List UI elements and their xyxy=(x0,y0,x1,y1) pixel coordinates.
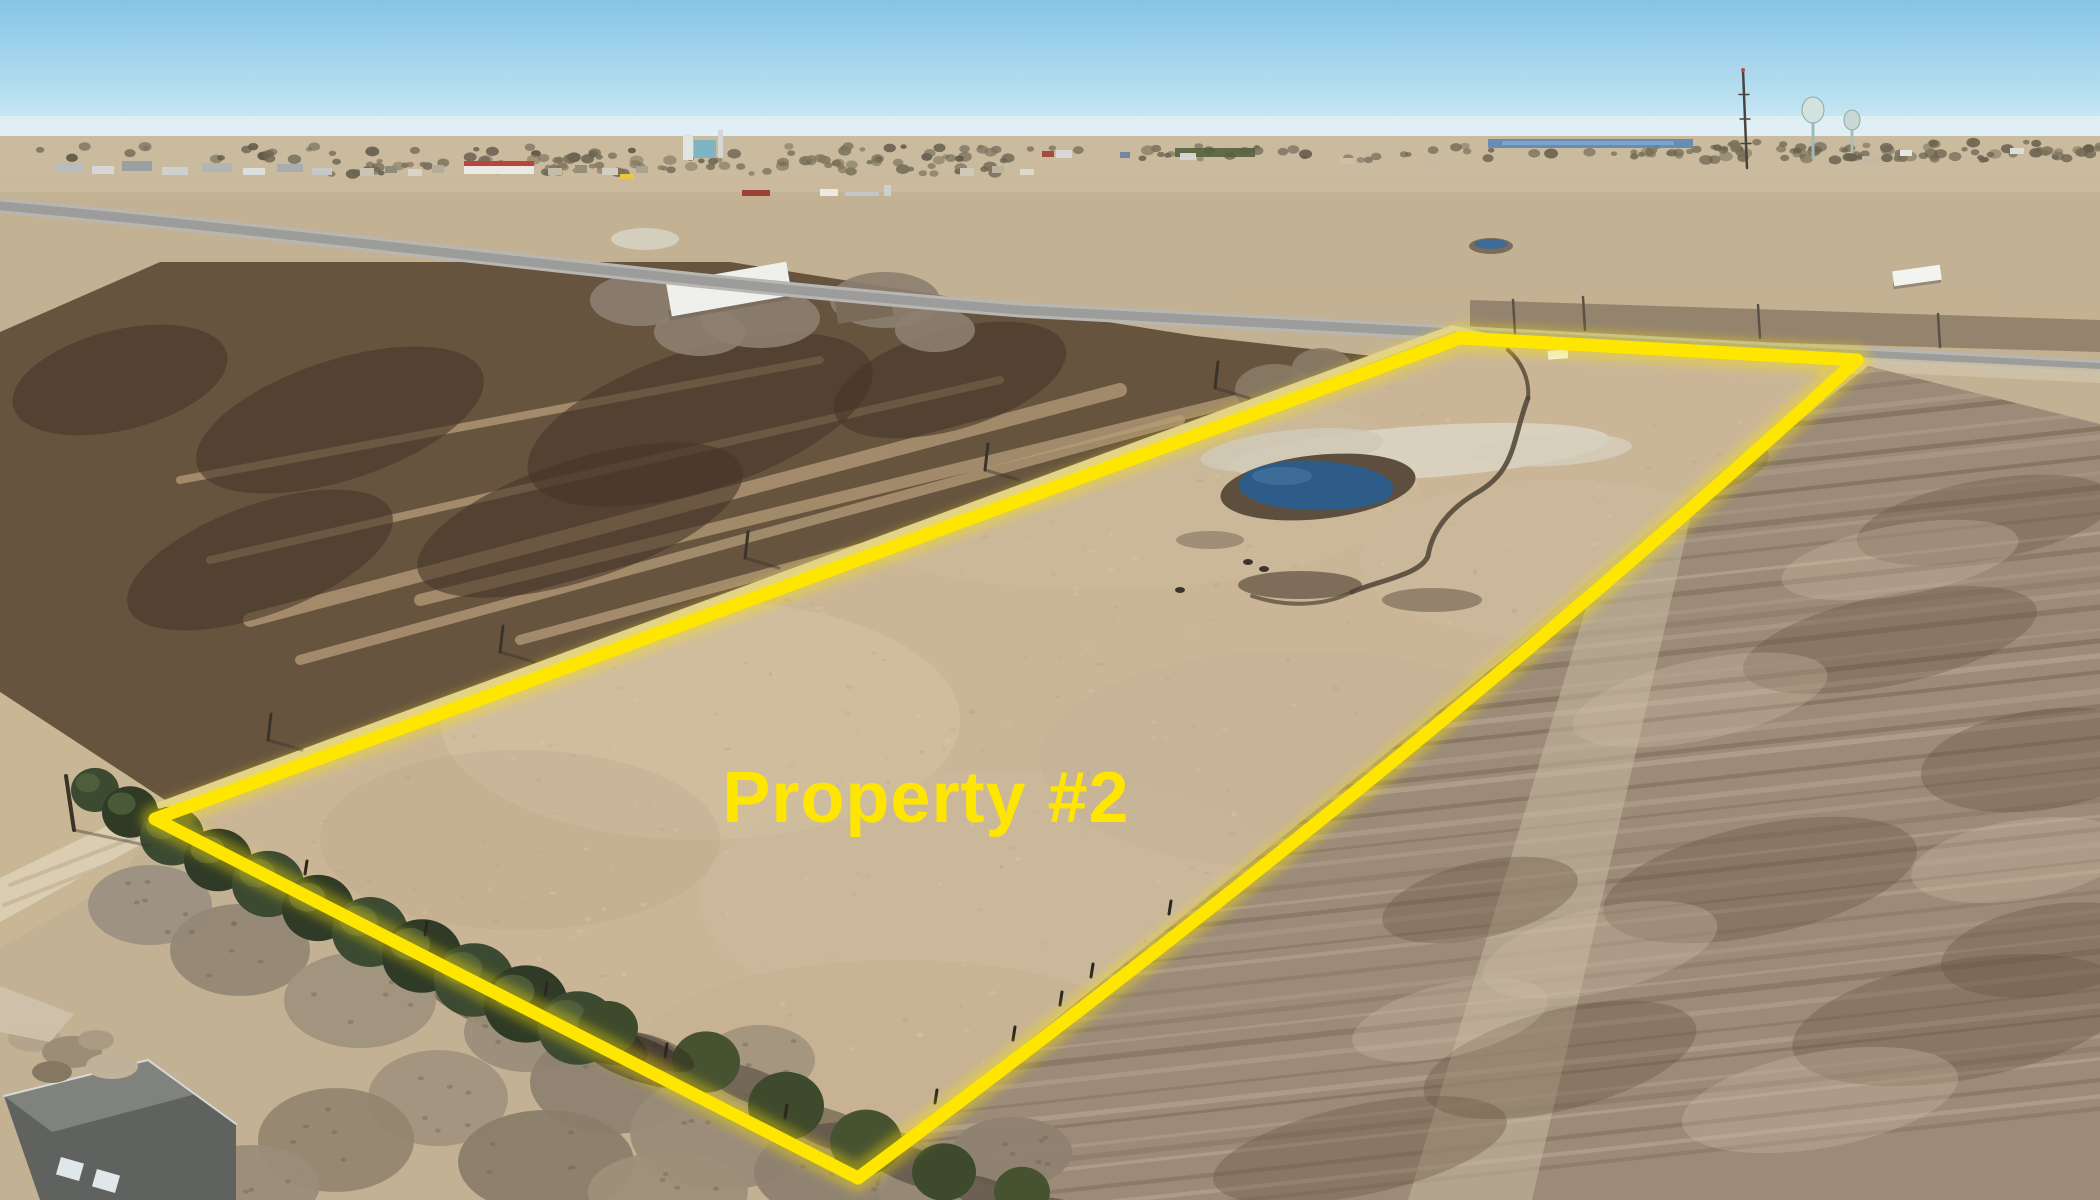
property-label: Property #2 xyxy=(722,758,1129,838)
sky-layer xyxy=(0,0,2100,144)
aerial-photo: Property #2 xyxy=(0,0,2100,1200)
scene-svg: Property #2 xyxy=(0,0,2100,1200)
